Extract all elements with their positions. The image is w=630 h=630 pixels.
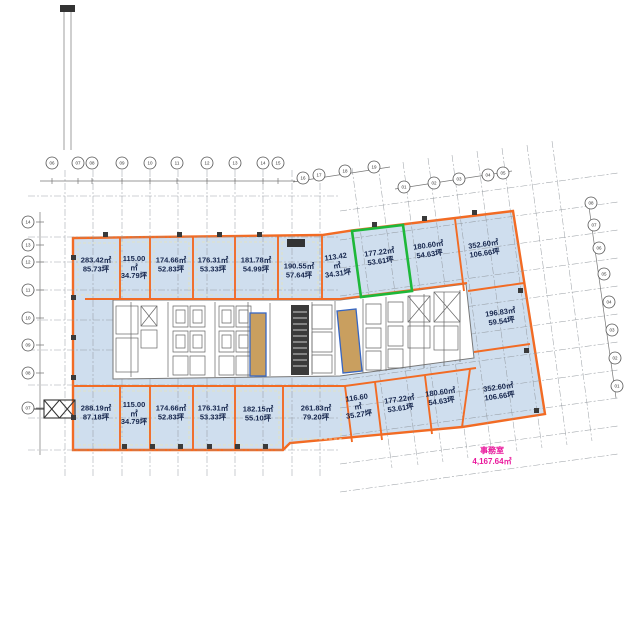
grid-bubble: 07: [588, 219, 600, 231]
grid-bubble: 05: [598, 268, 610, 280]
grid-bubble: 06: [46, 157, 58, 169]
svg-text:14: 14: [260, 161, 266, 166]
grid-bubble: 01: [398, 181, 410, 193]
svg-text:09: 09: [25, 343, 31, 348]
grid-bubble: 14: [22, 216, 34, 228]
svg-text:07: 07: [75, 161, 81, 166]
floor-plan-drawing: 0607080910111213141516171819010203040514…: [0, 0, 630, 630]
floor-plan-canvas: 0607080910111213141516171819010203040514…: [0, 0, 630, 630]
grid-bubble: 08: [585, 197, 597, 209]
grid-bubble: 11: [22, 284, 34, 296]
svg-text:19: 19: [371, 165, 377, 170]
svg-text:13: 13: [232, 161, 238, 166]
grid-bubble: 02: [428, 177, 440, 189]
grid-bubble: 10: [144, 157, 156, 169]
svg-text:08: 08: [588, 201, 594, 206]
room-label: 176.31㎡53.33坪: [198, 256, 228, 275]
grid-bubble: 18: [339, 165, 351, 177]
svg-text:12: 12: [204, 161, 210, 166]
svg-text:18: 18: [342, 169, 348, 174]
svg-text:08: 08: [25, 371, 31, 376]
svg-text:08: 08: [89, 161, 95, 166]
svg-text:04: 04: [606, 300, 612, 305]
grid-bubble: 12: [201, 157, 213, 169]
room-label: 115.00㎡34.79坪: [121, 401, 148, 427]
adjacent-structure: [60, 5, 75, 150]
svg-text:16: 16: [300, 176, 306, 181]
grid-bubble: 07: [72, 157, 84, 169]
room-label: 115.00㎡34.79坪: [121, 255, 148, 281]
grid-bubble: 03: [606, 324, 618, 336]
room-label: 181.78㎡54.99坪: [241, 256, 271, 275]
svg-text:02: 02: [612, 356, 618, 361]
svg-text:12: 12: [25, 260, 31, 265]
room-label: 182.15㎡55.10坪: [243, 405, 273, 424]
room-label: 288.19㎡87.18坪: [81, 404, 111, 423]
svg-text:09: 09: [119, 161, 125, 166]
grid-bubble: 19: [368, 161, 380, 173]
highlight-strip: [250, 313, 266, 376]
svg-text:03: 03: [456, 177, 462, 182]
svg-text:01: 01: [614, 384, 620, 389]
svg-text:06: 06: [596, 246, 602, 251]
room-label: 190.55㎡57.64坪: [284, 262, 314, 281]
svg-text:17: 17: [316, 173, 322, 178]
room-label: 113.42㎡34.31坪: [322, 251, 352, 280]
grid-bubble: 12: [22, 256, 34, 268]
grid-bubble: 07: [22, 402, 34, 414]
svg-text:14: 14: [25, 220, 31, 225]
x-braced-element: [30, 400, 75, 418]
svg-text:05: 05: [601, 272, 607, 277]
room-label: 116.60㎡35.27坪: [343, 392, 373, 421]
svg-text:10: 10: [25, 316, 31, 321]
svg-text:05: 05: [500, 171, 506, 176]
svg-text:04: 04: [485, 173, 491, 178]
grid-bubble: 08: [22, 367, 34, 379]
svg-text:07: 07: [591, 223, 597, 228]
svg-text:11: 11: [175, 161, 180, 166]
svg-text:03: 03: [609, 328, 615, 333]
grid-bubble: 17: [313, 169, 325, 181]
grid-bubble: 04: [603, 296, 615, 308]
svg-text:01: 01: [401, 185, 407, 190]
grid-bubble: 13: [229, 157, 241, 169]
grid-bubble: 03: [453, 173, 465, 185]
room-label: 261.83㎡79.20坪: [301, 404, 331, 423]
svg-text:06: 06: [49, 161, 55, 166]
room-label: 174.66㎡52.83坪: [156, 256, 186, 275]
grid-bubble: 11: [171, 157, 183, 169]
room-label: 176.31㎡53.33坪: [198, 404, 228, 423]
grid-bubble: 02: [609, 352, 621, 364]
grid-bubble: 04: [482, 169, 494, 181]
shaft-box: [287, 239, 305, 247]
grid-bubble: 15: [272, 157, 284, 169]
grid-bubble: 14: [257, 157, 269, 169]
grid-bubble: 06: [593, 242, 605, 254]
svg-text:11: 11: [26, 288, 31, 293]
room-label: 283.42㎡85.73坪: [81, 256, 111, 275]
grid-bubble: 09: [116, 157, 128, 169]
grid-bubble: 10: [22, 312, 34, 324]
svg-text:02: 02: [431, 181, 437, 186]
office-total-value: 4,167.64㎡: [452, 457, 532, 468]
grid-bubble: 01: [611, 380, 623, 392]
grid-bubble: 09: [22, 339, 34, 351]
office-total-note: 事務室 4,167.64㎡: [452, 446, 532, 468]
svg-text:07: 07: [25, 406, 31, 411]
office-total-label: 事務室: [452, 446, 532, 457]
grid-bubble: 08: [86, 157, 98, 169]
grid-bubble: 05: [497, 167, 509, 179]
svg-text:15: 15: [275, 161, 281, 166]
grid-bubble: 13: [22, 239, 34, 251]
svg-text:13: 13: [25, 243, 31, 248]
grid-bubble: 16: [297, 172, 309, 184]
svg-text:10: 10: [147, 161, 153, 166]
room-label: 174.66㎡52.83坪: [156, 404, 186, 423]
